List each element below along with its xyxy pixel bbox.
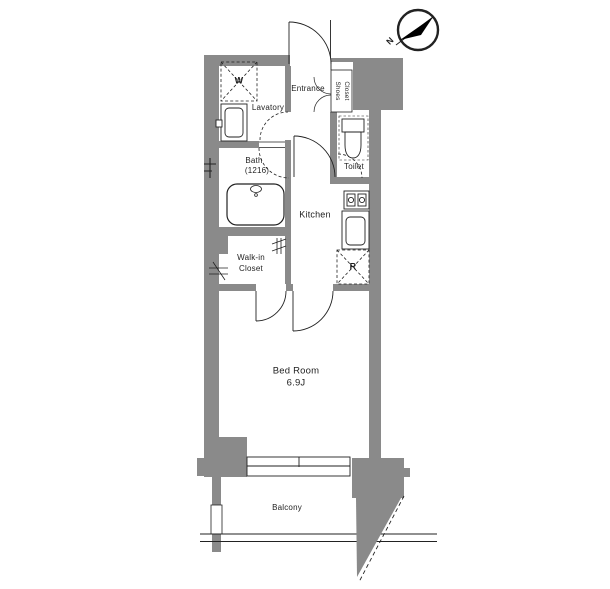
wall-toilet-left	[330, 112, 337, 183]
label-lavatory: Lavatory	[252, 104, 284, 112]
wall-pillar-southwest	[204, 437, 247, 477]
wall-right	[369, 110, 381, 458]
wall-hall-lavatory	[285, 66, 291, 112]
wall-block-southeast	[352, 458, 404, 498]
stove	[344, 191, 369, 209]
floor-plan: Entrance Shoes Closet Lavatory W Bath (1…	[0, 0, 610, 589]
label-balcony: Balcony	[272, 504, 302, 512]
balcony-glass-panel	[211, 505, 222, 534]
label-washer: W	[235, 77, 244, 86]
wall-above-shoes-closet	[331, 58, 353, 62]
wall-bedroom-top-c	[333, 284, 369, 291]
wall-wic-left-block	[204, 236, 228, 254]
label-bedroom-line2: 6.9J	[287, 378, 306, 388]
wic-door-arc	[256, 291, 286, 321]
wall-balcony-left-upper	[212, 477, 221, 507]
diagonal-wall-triangle	[356, 498, 401, 577]
north-arrow	[400, 17, 433, 40]
balcony-window	[247, 457, 350, 476]
label-wic-line1: Walk-in	[237, 254, 265, 262]
wall-lavatory-bath	[204, 141, 259, 148]
toilet-clearance	[339, 116, 368, 160]
label-refrigerator: R	[350, 263, 357, 272]
wall-bedroom-top-b	[286, 284, 293, 291]
kitchen-sink	[342, 211, 369, 249]
wall-step-southwest	[197, 458, 205, 476]
wall-bedroom-top-a	[219, 284, 256, 291]
wall-kitchen-bath	[285, 140, 291, 234]
wall-step-southeast	[403, 468, 410, 477]
compass	[396, 10, 438, 50]
label-bedroom-line1: Bed Room	[273, 366, 319, 376]
porch-line	[331, 20, 332, 70]
bathtub	[227, 184, 284, 225]
wall-balcony-left-lower	[212, 534, 221, 552]
label-toilet: Toilet	[344, 163, 364, 171]
label-shoes-closet-line2: Closet	[343, 81, 349, 100]
wall-toilet-bottom	[330, 177, 369, 184]
wall-kitchen-wic	[285, 234, 291, 284]
label-bath-line1: Bath	[245, 157, 262, 165]
label-kitchen: Kitchen	[299, 211, 330, 220]
bedroom-door-arc	[293, 291, 333, 331]
label-north: N	[385, 36, 395, 46]
label-entrance: Entrance	[291, 85, 325, 93]
shoes-closet-door-arcs	[314, 77, 331, 112]
label-wic-line2: Closet	[239, 265, 263, 273]
hanger-pipe-top	[272, 238, 286, 254]
entrance-door-arc	[289, 22, 331, 64]
wall-block-northeast	[353, 58, 403, 110]
balcony-railing	[200, 534, 437, 542]
wall-bath-wic	[204, 227, 290, 236]
bath-threshold	[259, 142, 285, 148]
label-bath-line2: (1216)	[245, 167, 269, 175]
washbasin	[216, 104, 247, 141]
toilet-fixture	[339, 116, 368, 160]
diagonal-boundary-dashed	[359, 496, 404, 582]
kitchen-door-arc	[294, 136, 335, 177]
label-shoes-closet-line1: Shoes	[334, 81, 340, 100]
lavatory-door-arc	[260, 112, 288, 140]
